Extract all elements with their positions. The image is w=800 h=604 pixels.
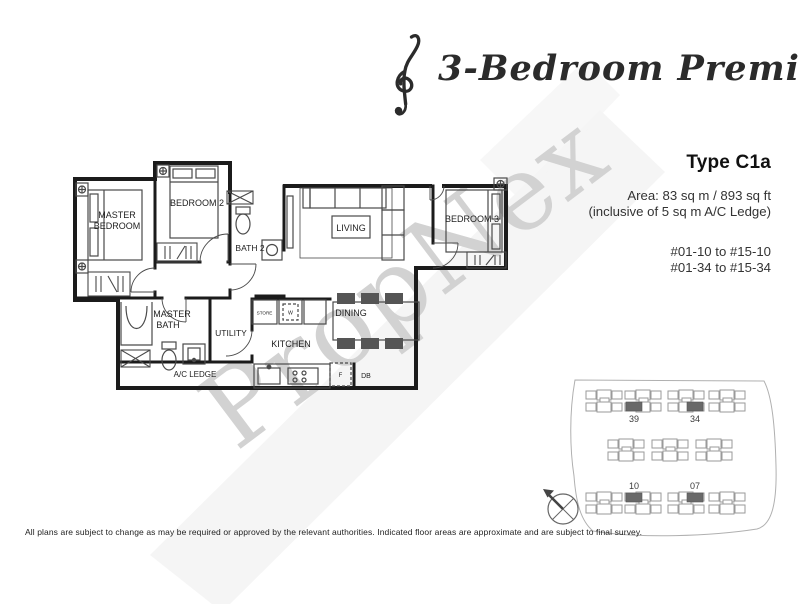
label-bedroom2: BEDROOM 2 <box>170 198 224 208</box>
stack-number-39: 39 <box>629 414 639 424</box>
label-store: STORE <box>257 311 273 316</box>
brochure-page: PropNex 3-Bedroom Premium Type C1a Area:… <box>0 0 800 604</box>
area-line-1: Area: 83 sq m / 893 sq ft <box>588 188 771 204</box>
label-bath2: BATH 2 <box>235 243 264 253</box>
label-ac-ledge: A/C LEDGE <box>174 370 217 379</box>
site-plan: 39 34 10 07 <box>533 376 798 576</box>
stack-number-10: 10 <box>629 481 639 491</box>
furniture <box>76 165 507 388</box>
unit-info: Type C1a Area: 83 sq m / 893 sq ft (incl… <box>588 152 771 276</box>
stack-range-2: #01-34 to #15-34 <box>588 260 771 276</box>
label-fridge: F <box>339 373 343 379</box>
treble-clef-icon <box>386 32 432 124</box>
compass-icon <box>543 489 578 524</box>
label-dining: DINING <box>335 308 367 318</box>
door-swings <box>131 186 458 356</box>
label-master-bath-2: BATH <box>156 320 179 330</box>
label-bedroom3: BEDROOM 3 <box>445 214 499 224</box>
disclaimer-text: All plans are subject to change as may b… <box>25 527 642 537</box>
area-line-2: (inclusive of 5 sq m A/C Ledge) <box>588 204 771 220</box>
label-living: LIVING <box>336 223 366 233</box>
label-washer: W <box>288 311 293 317</box>
label-kitchen: KITCHEN <box>271 339 311 349</box>
stack-number-07: 07 <box>690 481 700 491</box>
unit-type: Type C1a <box>588 152 771 174</box>
label-master-bath-1: MASTER <box>153 309 191 319</box>
outer-walls <box>75 163 506 388</box>
label-master-bedroom-2: BEDROOM <box>94 221 141 231</box>
label-master-bedroom-1: MASTER <box>98 210 136 220</box>
stack-number-34: 34 <box>690 414 700 424</box>
stack-range-1: #01-10 to #15-10 <box>588 244 771 260</box>
page-title: 3-Bedroom Premium <box>438 48 800 89</box>
label-utility: UTILITY <box>215 328 247 338</box>
dining-furniture <box>333 293 419 349</box>
label-db: DB <box>361 373 371 380</box>
floor-plan: MASTER BEDROOM BEDROOM 2 BATH 2 LIVING B… <box>55 140 550 435</box>
